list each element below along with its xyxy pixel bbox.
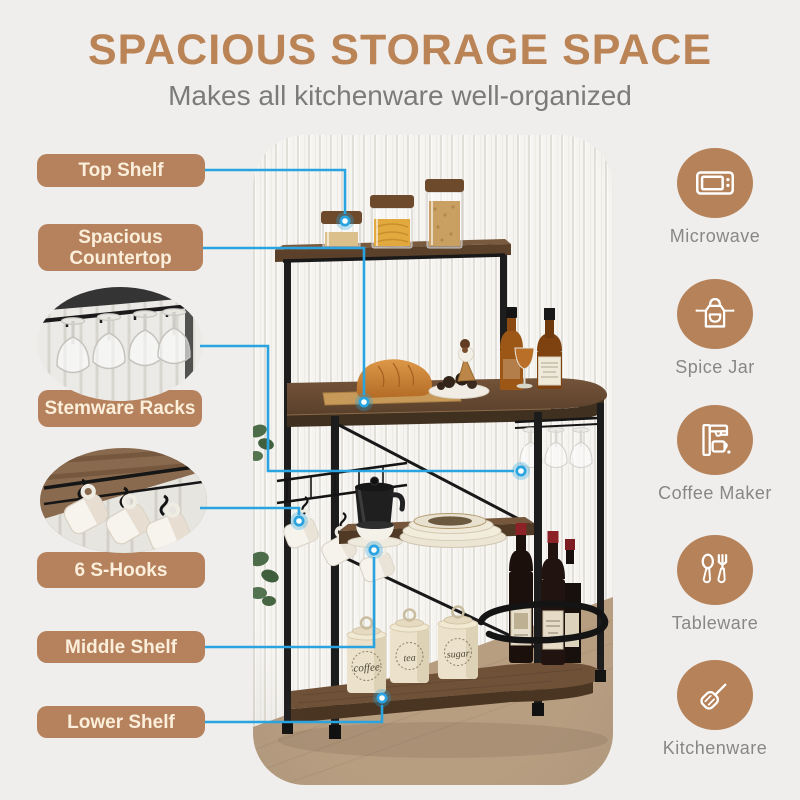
feature-microwave: Microwave — [640, 148, 790, 247]
page-title: SPACIOUS STORAGE SPACE — [0, 26, 800, 75]
bakers-rack-scene: coffee tea s — [253, 135, 613, 785]
mugs-inset-photo — [40, 448, 207, 553]
product-photo: coffee tea s — [253, 135, 613, 785]
callout-top-shelf: Top Shelf — [37, 154, 205, 187]
spatula-icon — [677, 660, 753, 730]
cutlery-icon — [677, 535, 753, 605]
feature-label-spice-jar: Spice Jar — [640, 357, 790, 378]
stemware-inset-photo — [37, 287, 203, 401]
feature-kitchenware: Kitchenware — [640, 660, 790, 759]
infographic-page: SPACIOUS STORAGE SPACE Makes all kitchen… — [0, 0, 800, 800]
feature-coffee-maker: Coffee Maker — [640, 405, 790, 504]
feature-label-microwave: Microwave — [640, 226, 790, 247]
callout-spacious-countertop: Spacious Countertop — [38, 224, 203, 271]
feature-label-kitchenware: Kitchenware — [640, 738, 790, 759]
feature-spice-jar: Spice Jar — [640, 279, 790, 378]
microwave-icon — [677, 148, 753, 218]
feature-tableware: Tableware — [640, 535, 790, 634]
feature-label-tableware: Tableware — [640, 613, 790, 634]
callout-s-hooks: 6 S-Hooks — [37, 552, 205, 588]
callout-lower-shelf: Lower Shelf — [37, 706, 205, 738]
page-subtitle: Makes all kitchenware well-organized — [0, 80, 800, 112]
coffee-maker-icon — [677, 405, 753, 475]
callout-middle-shelf: Middle Shelf — [37, 631, 205, 663]
apron-icon — [677, 279, 753, 349]
feature-label-coffee-maker: Coffee Maker — [640, 483, 790, 504]
